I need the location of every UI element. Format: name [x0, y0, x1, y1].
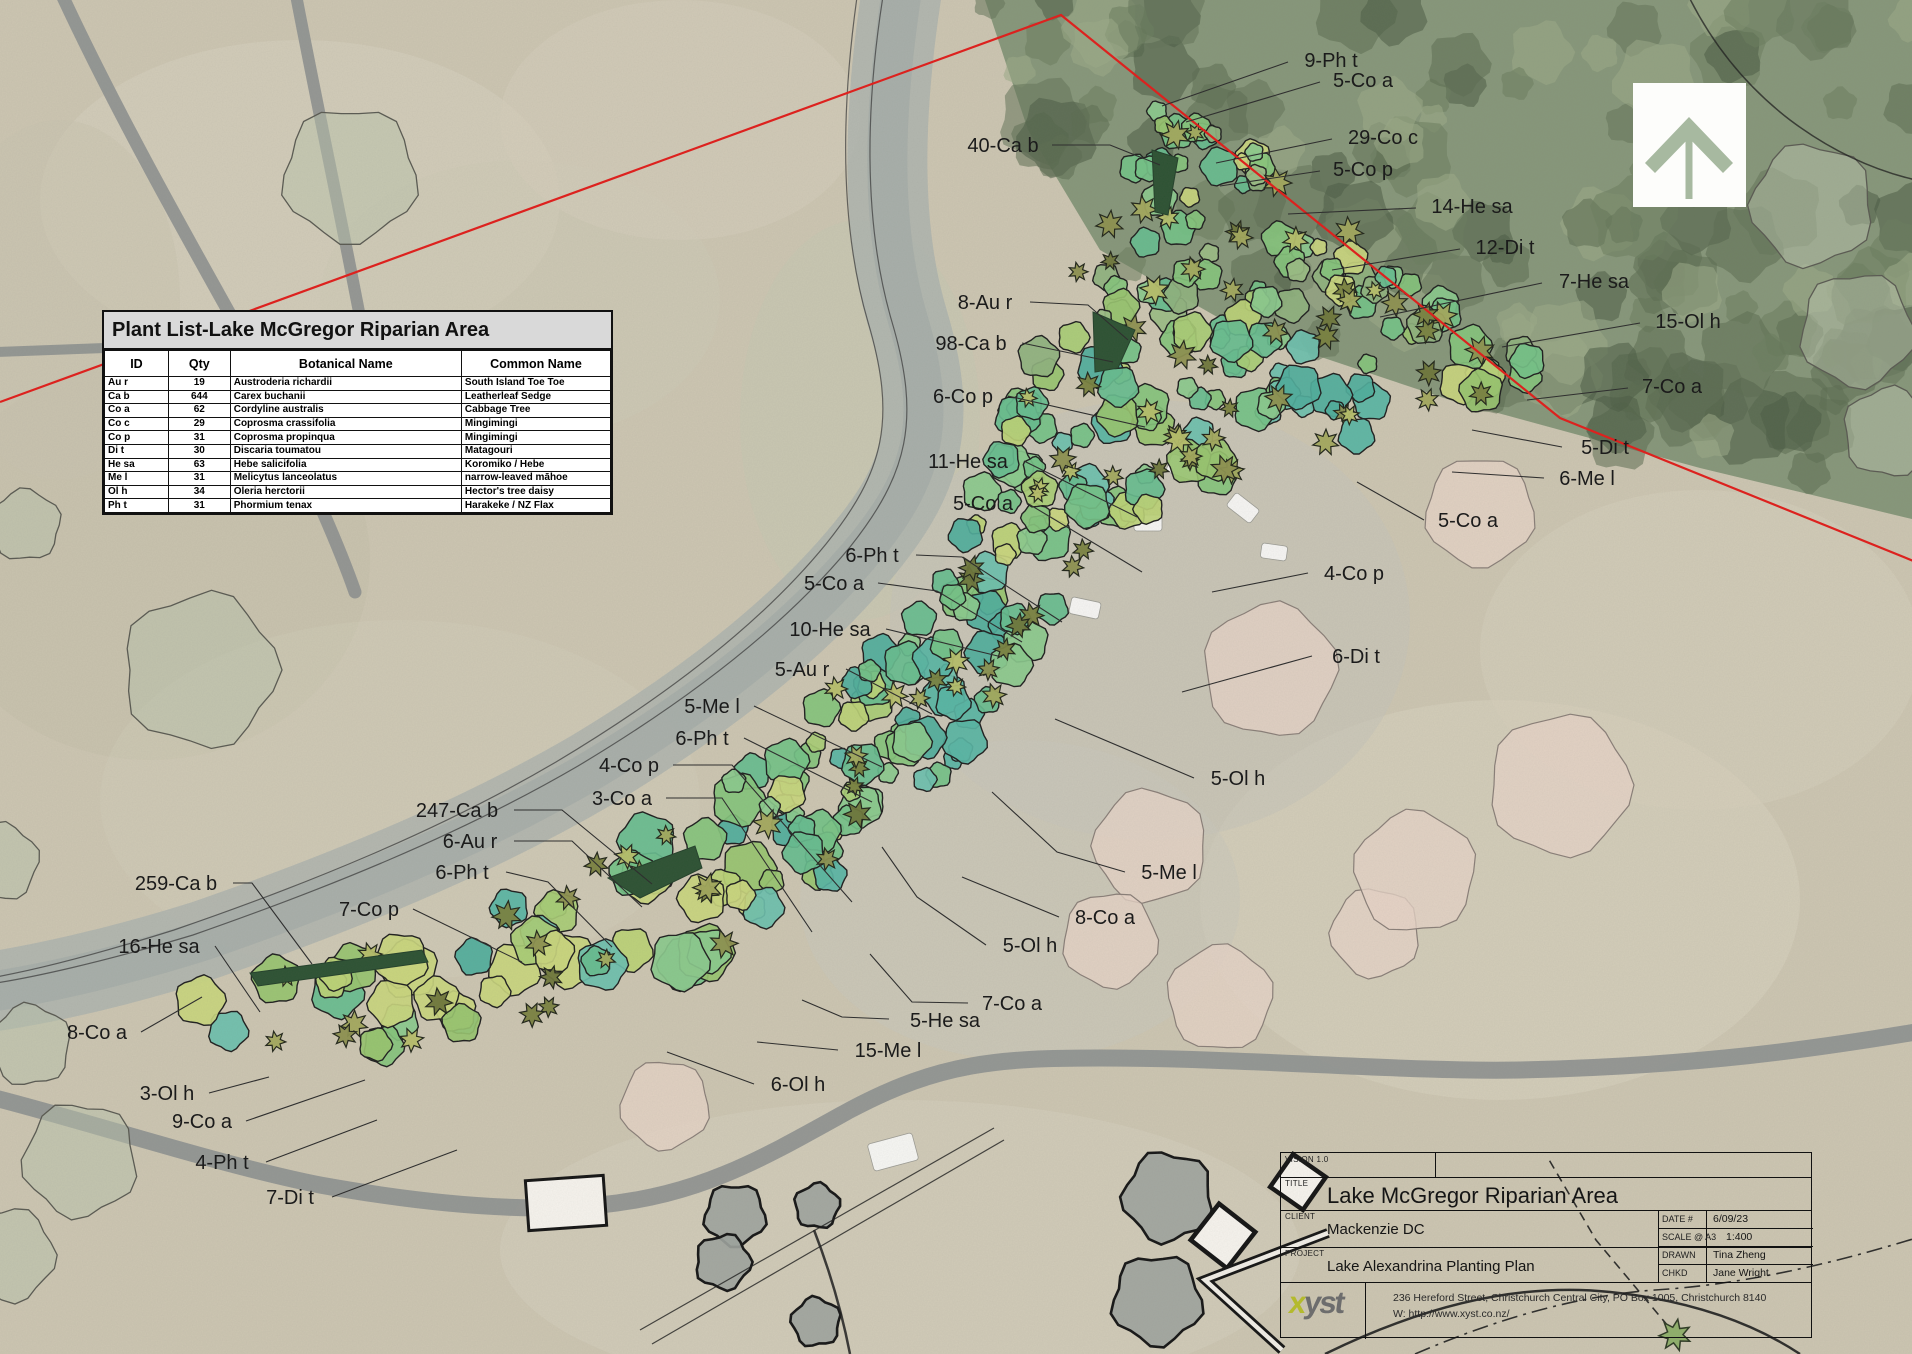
- planting-plan-page: 9-Ph t5-Co a29-Co c5-Co p14-He sa12-Di t…: [0, 0, 1912, 1354]
- common-name: Cabbage Tree: [461, 404, 610, 418]
- plant-group-label: 15-Ol h: [1655, 311, 1721, 333]
- plant-row: Co a62Cordyline australisCabbage Tree: [105, 404, 611, 418]
- botanical-name: Melicytus lanceolatus: [230, 472, 461, 486]
- plant-group-label: 6-Ol h: [771, 1074, 825, 1096]
- botanical-name: Phormium tenax: [230, 499, 461, 513]
- plant-group-label: 7-Co p: [339, 899, 399, 921]
- plant-group-label: 6-Co p: [933, 386, 993, 408]
- plant-group-label: 5-Di t: [1581, 437, 1629, 459]
- common-name: Leatherleaf Sedge: [461, 390, 610, 404]
- plant-group-label: 3-Ol h: [140, 1083, 194, 1105]
- plant-id: Ol h: [105, 485, 169, 499]
- botanical-name: Carex buchanii: [230, 390, 461, 404]
- plant-row: Co c29Coprosma crassifoliaMingimingi: [105, 417, 611, 431]
- project-label: PROJECT: [1285, 1249, 1324, 1258]
- plant-group-label: 5-He sa: [910, 1010, 981, 1032]
- date-value: 6/09/23: [1713, 1213, 1748, 1225]
- plant-table-head-row: IDQtyBotanical NameCommon Name: [105, 351, 611, 377]
- common-name: narrow-leaved māhoe: [461, 472, 610, 486]
- plant-qty: 19: [168, 377, 230, 391]
- plant-group-label: 6-Ph t: [435, 862, 489, 884]
- plant-group-label: 9-Co a: [172, 1111, 233, 1133]
- plant-group-label: 6-Ph t: [675, 728, 729, 750]
- plant-row: Ol h34Oleria herctoriiHector's tree dais…: [105, 485, 611, 499]
- plant-table-body: Au r19Austroderia richardiiSouth Island …: [105, 377, 611, 513]
- plant-qty: 62: [168, 404, 230, 418]
- scale-label: SCALE @ A3: [1662, 1232, 1716, 1242]
- north-arrow: [1633, 83, 1746, 207]
- plant-row: He sa63Hebe salicifoliaKoromiko / Hebe: [105, 458, 611, 472]
- common-name: Koromiko / Hebe: [461, 458, 610, 472]
- drawing-title: Lake McGregor Riparian Area: [1327, 1183, 1618, 1209]
- plant-group-label: 8-Co a: [67, 1022, 128, 1044]
- plant-group-label: 7-He sa: [1559, 271, 1630, 293]
- plant-group-label: 10-He sa: [789, 619, 871, 641]
- plant-id: Au r: [105, 377, 169, 391]
- chkd-label: CHKD: [1662, 1268, 1688, 1278]
- plant-group-label: 7-Co a: [982, 993, 1043, 1015]
- common-name: Matagouri: [461, 444, 610, 458]
- plant-group-label: 6-Me l: [1559, 468, 1615, 490]
- botanical-name: Oleria herctorii: [230, 485, 461, 499]
- plant-group-label: 5-Co a: [953, 493, 1014, 515]
- plant-group-label: 7-Co a: [1642, 376, 1703, 398]
- common-name: Harakeke / NZ Flax: [461, 499, 610, 513]
- common-name: Hector's tree daisy: [461, 485, 610, 499]
- drawn-label: DRAWN: [1662, 1250, 1696, 1260]
- botanical-name: Coprosma crassifolia: [230, 417, 461, 431]
- plant-group-label: 12-Di t: [1476, 237, 1535, 259]
- plant-row: Au r19Austroderia richardiiSouth Island …: [105, 377, 611, 391]
- plant-id: Co p: [105, 431, 169, 445]
- botanical-name: Austroderia richardii: [230, 377, 461, 391]
- drawn-value: Tina Zheng: [1713, 1249, 1766, 1261]
- plant-list-table: Plant List-Lake McGregor Riparian Area I…: [102, 310, 613, 515]
- xyst-logo: xyst: [1286, 1285, 1345, 1321]
- plant-group-label: 4-Co p: [1324, 563, 1384, 585]
- plant-group-label: 5-Ol h: [1003, 935, 1057, 957]
- plant-group-label: 7-Di t: [266, 1187, 314, 1209]
- botanical-name: Coprosma propinqua: [230, 431, 461, 445]
- date-label: DATE #: [1662, 1214, 1693, 1224]
- chkd-value: Jane Wright: [1713, 1267, 1769, 1279]
- plant-qty: 31: [168, 499, 230, 513]
- plant-group-label: 5-Au r: [775, 659, 830, 681]
- site-plan-canvas: 9-Ph t5-Co a29-Co c5-Co p14-He sa12-Di t…: [0, 0, 1912, 1354]
- plant-table-title: Plant List-Lake McGregor Riparian Area: [104, 312, 611, 350]
- column-header: Common Name: [461, 351, 610, 377]
- plant-id: He sa: [105, 458, 169, 472]
- common-name: Mingimingi: [461, 431, 610, 445]
- title-label: TITLE: [1285, 1179, 1308, 1188]
- plant-group-label: 8-Co a: [1075, 907, 1136, 929]
- company-website: W: http://www.xyst.co.nz/: [1393, 1307, 1510, 1322]
- plant-id: Co a: [105, 404, 169, 418]
- plant-group-label: 5-Co a: [804, 573, 865, 595]
- plant-group-label: 14-He sa: [1431, 196, 1513, 218]
- plant-group-label: 247-Ca b: [416, 800, 498, 822]
- plant-group-label: 5-Co p: [1333, 159, 1393, 181]
- plant-group-label: 9-Ph t: [1304, 50, 1358, 72]
- plant-group-label: 15-Me l: [855, 1040, 922, 1062]
- plant-qty: 31: [168, 472, 230, 486]
- plant-row: Co p31Coprosma propinquaMingimingi: [105, 431, 611, 445]
- plant-row: Me l31Melicytus lanceolatusnarrow-leaved…: [105, 472, 611, 486]
- plant-qty: 30: [168, 444, 230, 458]
- plant-group-label: 6-Di t: [1332, 646, 1380, 668]
- north-arrow-icon: [1633, 83, 1746, 207]
- plant-group-label: 29-Co c: [1348, 127, 1418, 149]
- common-name: Mingimingi: [461, 417, 610, 431]
- plant-group-label: 16-He sa: [118, 936, 200, 958]
- plant-row: Ph t31Phormium tenaxHarakeke / NZ Flax: [105, 499, 611, 513]
- plant-group-label: 8-Au r: [958, 292, 1013, 314]
- plant-qty: 63: [168, 458, 230, 472]
- column-header: ID: [105, 351, 169, 377]
- plant-id: Me l: [105, 472, 169, 486]
- plant-qty: 31: [168, 431, 230, 445]
- botanical-name: Cordyline australis: [230, 404, 461, 418]
- plant-id: Ph t: [105, 499, 169, 513]
- plant-group-label: 5-Co a: [1438, 510, 1499, 532]
- plant-group-label: 5-Co a: [1333, 70, 1394, 92]
- plant-group-label: 6-Au r: [443, 831, 498, 853]
- plant-group-label: 259-Ca b: [135, 873, 217, 895]
- revision-label: VISION 1.0: [1285, 1155, 1328, 1164]
- plant-id: Ca b: [105, 390, 169, 404]
- botanical-name: Discaria toumatou: [230, 444, 461, 458]
- plant-group-label: 5-Me l: [1141, 862, 1197, 884]
- column-header: Botanical Name: [230, 351, 461, 377]
- plant-group-label: 4-Ph t: [195, 1152, 249, 1174]
- plant-qty: 29: [168, 417, 230, 431]
- plant-group-label: 40-Ca b: [967, 135, 1038, 157]
- photo-grain: [0, 0, 1912, 1354]
- plant-group-label: 5-Ol h: [1211, 768, 1265, 790]
- plant-qty: 644: [168, 390, 230, 404]
- client-name: Mackenzie DC: [1327, 1221, 1425, 1238]
- common-name: South Island Toe Toe: [461, 377, 610, 391]
- plant-qty: 34: [168, 485, 230, 499]
- plant-row: Ca b644Carex buchaniiLeatherleaf Sedge: [105, 390, 611, 404]
- plant-row: Di t30Discaria toumatouMatagouri: [105, 444, 611, 458]
- plant-group-label: 98-Ca b: [935, 333, 1006, 355]
- column-header: Qty: [168, 351, 230, 377]
- botanical-name: Hebe salicifolia: [230, 458, 461, 472]
- plant-group-label: 6-Ph t: [845, 545, 899, 567]
- client-label: CLIENT: [1285, 1212, 1315, 1221]
- scale-value: 1:400: [1726, 1231, 1752, 1243]
- plant-group-label: 3-Co a: [592, 788, 653, 810]
- plant-group-label: 11-He sa: [928, 451, 1009, 473]
- title-block: VISION 1.0 TITLE Lake McGregor Riparian …: [1280, 1152, 1812, 1338]
- project-name: Lake Alexandrina Planting Plan: [1327, 1258, 1535, 1275]
- plant-group-label: 4-Co p: [599, 755, 659, 777]
- plant-id: Di t: [105, 444, 169, 458]
- plant-id: Co c: [105, 417, 169, 431]
- company-address: 236 Hereford Street, Christchurch Centra…: [1393, 1291, 1766, 1306]
- plant-group-label: 5-Me l: [684, 696, 740, 718]
